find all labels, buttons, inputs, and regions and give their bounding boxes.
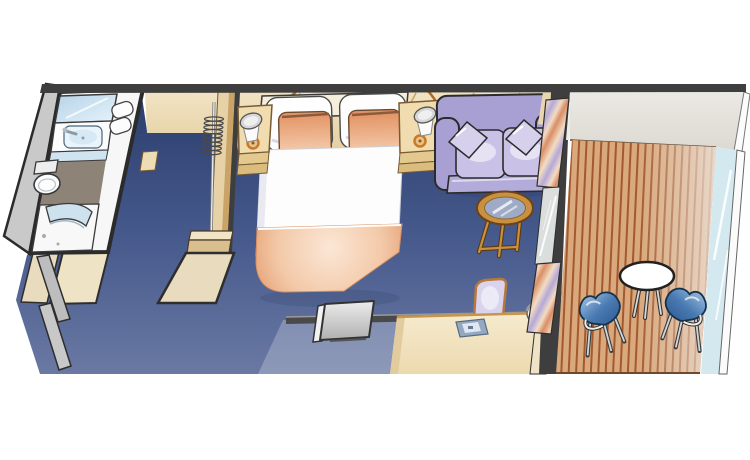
shower xyxy=(32,203,99,252)
stateroom-floorplan xyxy=(0,0,750,460)
table-glass xyxy=(485,197,526,219)
nightstand-left xyxy=(237,105,272,175)
telephone xyxy=(456,319,488,337)
wall-tv xyxy=(313,301,374,342)
floorplan-canvas xyxy=(0,0,750,460)
balcony xyxy=(556,92,750,374)
wall-ledge xyxy=(140,151,158,171)
shoe-shelf xyxy=(189,231,233,240)
toilet xyxy=(33,160,62,196)
queen-bed xyxy=(256,92,408,292)
desk-chair xyxy=(474,279,506,318)
top-wall xyxy=(40,84,746,93)
tv-screen xyxy=(320,301,374,340)
